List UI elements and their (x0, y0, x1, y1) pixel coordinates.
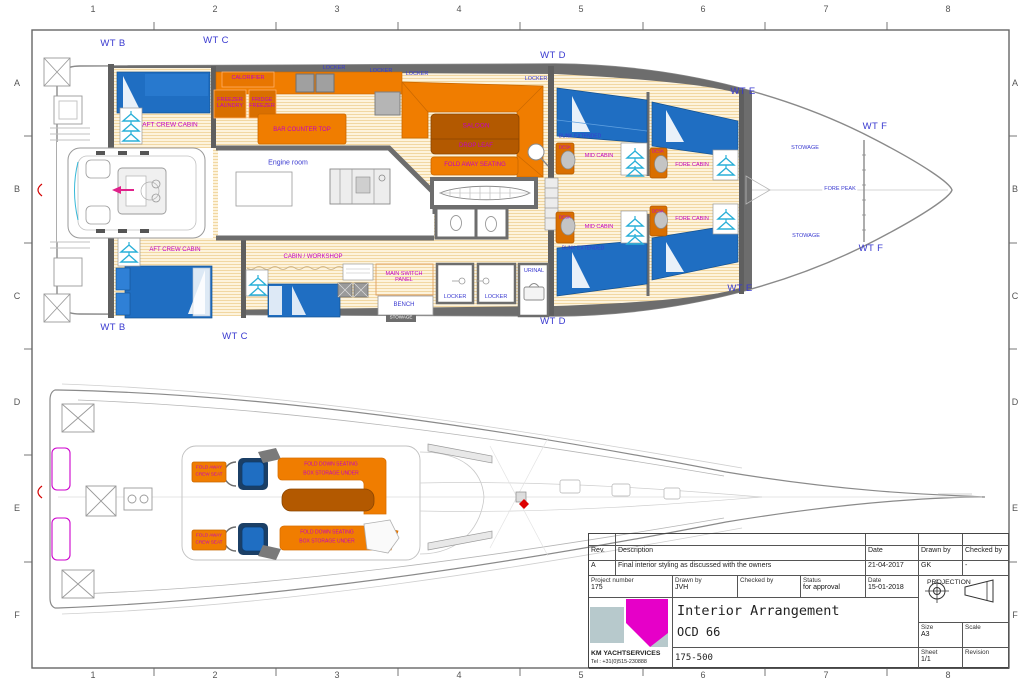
freezer-laundry-label: FREEZER LAUNDRY (215, 98, 245, 110)
rev-a-description: Final interior styling as discussed with… (616, 561, 866, 576)
mid-cabin-label: MID CABIN (585, 154, 613, 160)
company-logo-cell: KM YACHTSERVICES Tel : +31(0)515-230888 (589, 598, 673, 669)
drawn-by-cell: Drawn by JVH (673, 576, 738, 598)
projection-symbol-icon (919, 576, 1007, 606)
drawing-subtitle: OCD 66 (677, 625, 916, 639)
revision-label: Revision (965, 649, 1006, 656)
desk-label: DESK (559, 146, 571, 151)
row-label: A (1012, 78, 1018, 88)
cockpit-bench-label: FOLD DOWN SEATING (300, 530, 354, 535)
stowage-label: STOWAGE (792, 234, 820, 240)
cabin-workshop-label: CABIN / WORKSHOP (283, 254, 342, 260)
company-name: KM YACHTSERVICES (591, 650, 660, 657)
fold-away-seat-label: CREW SEAT (196, 473, 223, 478)
rev-a-rev: A (589, 561, 616, 576)
company-tel: Tel : +31(0)515-230888 (591, 659, 647, 665)
col-label: 6 (700, 4, 705, 14)
doc-number-cell: 175-500 (673, 648, 919, 669)
date-label: Date (868, 577, 916, 584)
wt-b-top: WT B (100, 39, 125, 49)
col-label: 6 (700, 670, 705, 680)
desk-label: DESK (652, 150, 664, 155)
scale-label: Scale (965, 624, 1006, 631)
row-label: C (1012, 291, 1019, 301)
col-label: 1 (90, 4, 95, 14)
engine-room (216, 148, 435, 238)
projection-cell: PROJECTION (919, 576, 1009, 623)
row-label: E (1012, 503, 1018, 513)
title-block: Rev. Description Date Drawn by Checked b… (588, 533, 1009, 668)
wt-d-top: WT D (540, 51, 566, 61)
col-label: 3 (334, 670, 339, 680)
engine-room-label: Engine room (268, 159, 308, 166)
drawn-by-value: JVH (675, 584, 735, 591)
row-label: A (14, 78, 20, 88)
col-label: 7 (823, 670, 828, 680)
status-cell: Status for approval (801, 576, 866, 598)
rev-spare-cell (919, 534, 963, 546)
rev-a-checked-by: - (963, 561, 1009, 576)
date-cell: Date 15-01-2018 (866, 576, 919, 598)
fold-away-seat-label: FOLD AWAY (196, 466, 222, 471)
calorifier-label: CALORIFIER (231, 76, 264, 82)
mast (528, 144, 544, 160)
desk-label: DESK (559, 216, 571, 221)
sheet-label: Sheet (921, 649, 960, 656)
locker-label: LOCKER (444, 295, 467, 301)
drawing-sheet: 1 2 3 4 5 6 7 8 1 2 3 4 5 6 7 8 A B C D … (0, 0, 1024, 683)
bunk-extended-label: BUNK EXTENDED (562, 246, 605, 251)
wt-f-bot: WT F (859, 244, 884, 254)
fridge-freezer-label: FRIDGE FREEZER (248, 98, 276, 110)
rev-spare-cell (616, 534, 866, 546)
urinal-label: URINAL (524, 269, 544, 275)
rev-header-checked-by: Checked by (963, 546, 1009, 561)
wt-c-top: WT C (203, 36, 229, 46)
rev-header-description: Description (616, 546, 866, 561)
aft-crew-cabin-label: AFT CREW CABIN (142, 123, 198, 130)
drawing-title: Interior Arrangement (677, 603, 916, 619)
wt-b-bot: WT B (100, 323, 125, 333)
km-logo-icon (590, 599, 670, 649)
row-label: D (14, 397, 21, 407)
project-number-value: 175 (591, 584, 670, 591)
col-label: 5 (578, 4, 583, 14)
row-label: F (14, 610, 20, 620)
col-label: 3 (334, 4, 339, 14)
col-label: 4 (456, 670, 461, 680)
rev-header-rev: Rev. (589, 546, 616, 561)
stowage-label: STOWAGE (791, 146, 819, 152)
col-label: 8 (945, 670, 950, 680)
size-cell: Size A3 (919, 623, 963, 648)
row-label: B (1012, 184, 1018, 194)
rev-header-date: Date (866, 546, 919, 561)
aft-crew-cabin-label: AFT CREW CABIN (149, 247, 200, 253)
drop-leaf-label: DROP LEAF (459, 143, 493, 149)
size-value: A3 (921, 631, 960, 638)
cockpit-bench-label: BOX STORAGE UNDER (303, 471, 358, 476)
project-number-cell: Project number 175 (589, 576, 673, 598)
rev-spare-cell (866, 534, 919, 546)
rev-spare-cell (963, 534, 1009, 546)
row-label: B (14, 184, 20, 194)
sheet-cell: Sheet 1/1 (919, 648, 963, 669)
revision-cell: Revision (963, 648, 1009, 669)
wt-d-bot: WT D (540, 317, 566, 327)
cockpit-table (282, 489, 374, 511)
mid-cabin-label: MID CABIN (585, 225, 613, 231)
drawn-by-label: Drawn by (675, 577, 735, 584)
row-label: E (14, 503, 20, 513)
fold-away-seating-label: FOLD AWAY SEATING (444, 162, 506, 168)
fold-away-seat-label: CREW SEAT (196, 541, 223, 546)
checked-by-cell: Checked by (738, 576, 801, 598)
locker-label: LOCKER (406, 72, 429, 78)
desk-label: DESK (652, 210, 664, 215)
col-label: 1 (90, 670, 95, 680)
rev-spare-cell (589, 534, 616, 546)
status-value: for approval (803, 584, 863, 591)
row-label: D (1012, 397, 1019, 407)
locker-label: LOCKER (525, 77, 548, 83)
col-label: 2 (212, 4, 217, 14)
interior-plan-view (38, 58, 952, 322)
status-label: Status (803, 577, 863, 584)
row-label: C (14, 291, 21, 301)
locker-label: LOCKER (485, 295, 508, 301)
wt-e-top: WT E (730, 87, 755, 97)
main-switch-panel-label: MAIN SWITCH PANEL (378, 272, 430, 284)
size-label: Size (921, 624, 960, 631)
col-label: 5 (578, 670, 583, 680)
wt-e-bot: WT E (727, 284, 752, 294)
dinghy-storage (432, 179, 536, 207)
date-value: 15-01-2018 (868, 584, 916, 591)
bench-label: BENCH (393, 302, 414, 308)
rev-header-drawn-by: Drawn by (919, 546, 963, 561)
saloon-label: SALOON (462, 124, 489, 131)
wt-f-top: WT F (863, 122, 888, 132)
scale-cell: Scale (963, 623, 1009, 648)
cockpit-bench-label: FOLD DOWN SEATING (304, 462, 358, 467)
locker-label: LOCKER (323, 66, 346, 72)
stowage-strip-label: STOWAGE (390, 316, 413, 321)
drawing-title-cell: Interior Arrangement OCD 66 (673, 598, 919, 648)
project-number-label: Project number (591, 577, 670, 584)
cockpit-bench-label: BOX STORAGE UNDER (299, 539, 354, 544)
bar-counter-top-label: BAR COUNTER TOP (273, 127, 330, 133)
col-label: 4 (456, 4, 461, 14)
fold-away-seat-label: FOLD AWAY (196, 534, 222, 539)
rev-a-date: 21-04-2017 (866, 561, 919, 576)
bunk-extended-label: BUNK EXTENDED (559, 134, 602, 139)
wt-c-bot: WT C (222, 332, 248, 342)
row-label: F (1012, 610, 1018, 620)
day-heads (436, 208, 507, 238)
col-label: 7 (823, 4, 828, 14)
fore-peak-label: FORE PEAK (822, 187, 857, 193)
checked-by-label: Checked by (740, 577, 798, 584)
col-label: 8 (945, 4, 950, 14)
locker-label: LOCKER (370, 69, 393, 75)
fore-cabin-label: FORE CABIN (675, 217, 709, 223)
col-label: 2 (212, 670, 217, 680)
fore-cabin-label: FORE CABIN (675, 163, 709, 169)
sheet-value: 1/1 (921, 656, 960, 663)
rev-a-drawn-by: GK (919, 561, 963, 576)
